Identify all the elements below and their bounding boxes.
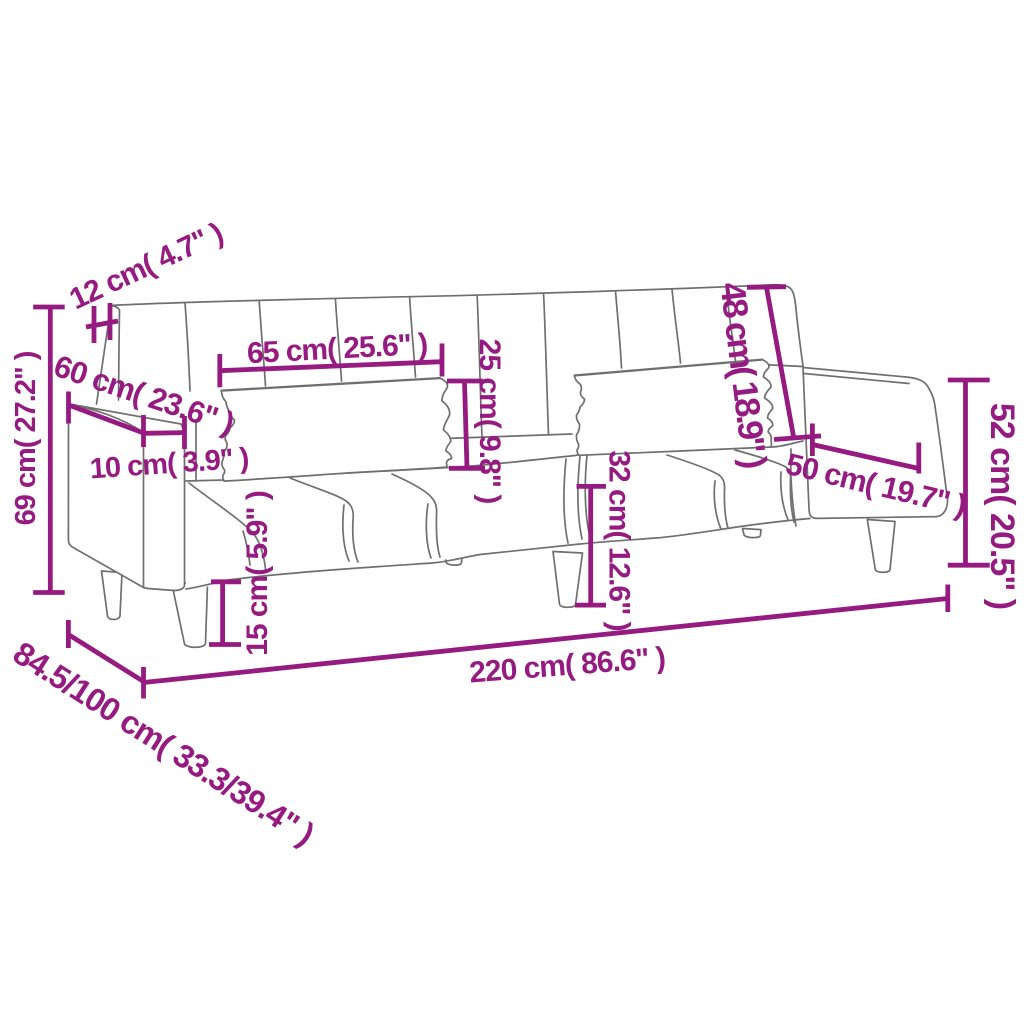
- svg-text:15 cm( 5.9" ): 15 cm( 5.9" ): [241, 491, 274, 656]
- svg-text:32 cm( 12.6" ): 32 cm( 12.6" ): [603, 450, 636, 630]
- svg-text:52 cm( 20.5" ): 52 cm( 20.5" ): [983, 403, 1021, 609]
- svg-text:220 cm( 86.6" ): 220 cm( 86.6" ): [468, 641, 666, 689]
- svg-text:69 cm( 27.2" ): 69 cm( 27.2" ): [10, 351, 42, 525]
- svg-text:25 cm( 9.8" ): 25 cm( 9.8" ): [473, 339, 506, 504]
